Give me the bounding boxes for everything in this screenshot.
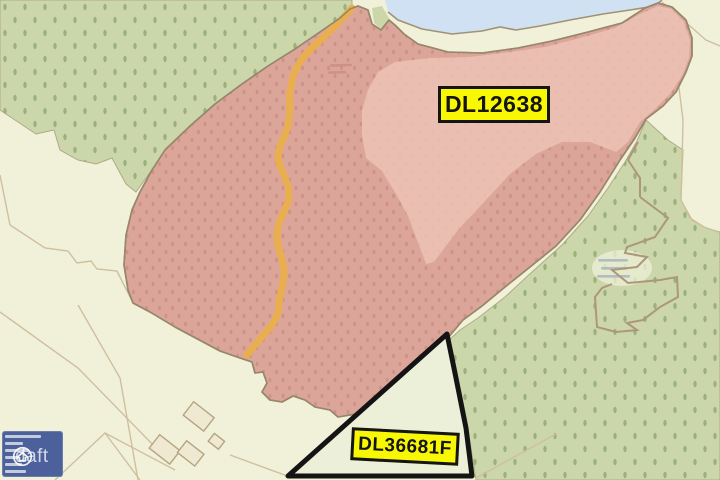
legend-microtext-line <box>5 435 41 438</box>
house-icon <box>12 446 33 467</box>
parcel-label-dl12638: DL12638 <box>438 86 550 123</box>
map-graphics <box>0 0 720 480</box>
daft-watermark: daft <box>12 446 49 468</box>
parcel-label-dl36681f: DL36681F <box>350 427 460 466</box>
legend-microtext-line <box>5 442 23 445</box>
legend-microtext-line <box>5 470 26 473</box>
map-image[interactable]: DL12638 DL36681F daft <box>0 0 720 480</box>
map-legend-panel: daft <box>2 431 63 477</box>
